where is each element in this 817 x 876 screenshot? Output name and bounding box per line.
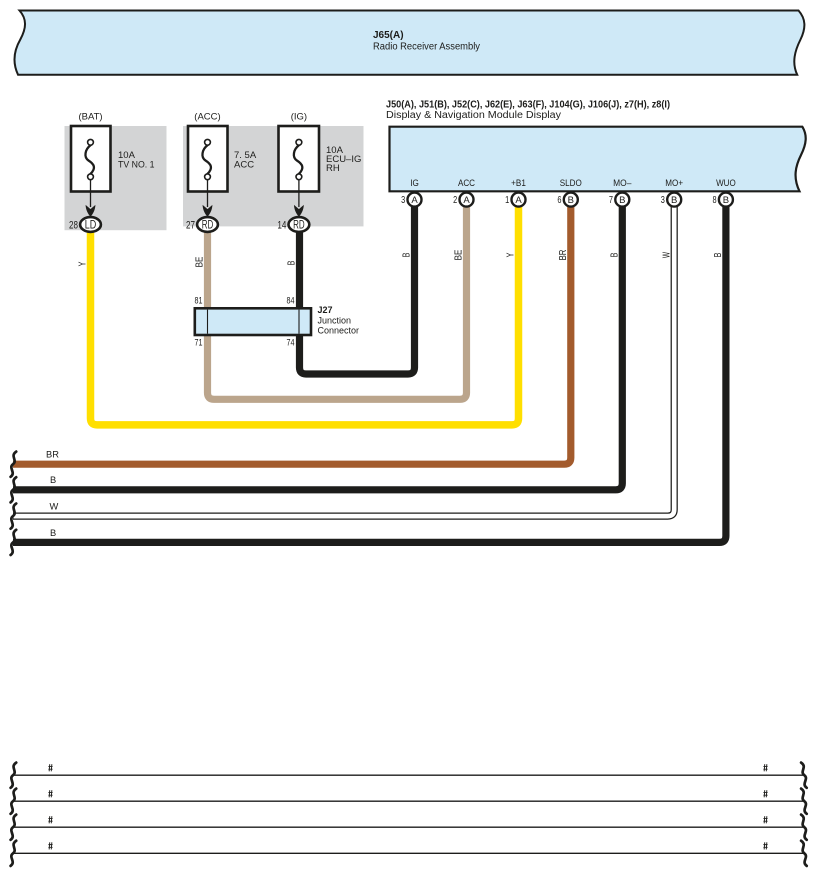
svg-text:MO+: MO+ bbox=[665, 178, 683, 188]
svg-text:3: 3 bbox=[661, 195, 665, 206]
svg-text:BE: BE bbox=[194, 257, 206, 268]
svg-text:BE: BE bbox=[453, 250, 465, 261]
svg-text:B: B bbox=[619, 195, 625, 206]
svg-text:Display & Navigation Module Di: Display & Navigation Module Display bbox=[386, 110, 561, 121]
svg-text:A: A bbox=[463, 195, 470, 206]
svg-text:SLDO: SLDO bbox=[560, 178, 582, 188]
svg-text:71: 71 bbox=[195, 337, 203, 348]
svg-text:J65(A): J65(A) bbox=[373, 30, 404, 41]
svg-text:RD: RD bbox=[202, 219, 214, 231]
svg-text:Y: Y bbox=[77, 262, 89, 267]
svg-text:BR: BR bbox=[46, 450, 59, 460]
svg-text:B: B bbox=[568, 195, 574, 206]
svg-text:W: W bbox=[660, 252, 672, 258]
svg-text:LD: LD bbox=[85, 219, 97, 231]
svg-text:Y: Y bbox=[505, 253, 517, 258]
svg-text:A: A bbox=[411, 195, 418, 206]
svg-text:(IG): (IG) bbox=[291, 112, 307, 123]
svg-text:84: 84 bbox=[287, 296, 295, 307]
svg-text:(ACC): (ACC) bbox=[194, 112, 220, 123]
svg-text:81: 81 bbox=[195, 296, 203, 307]
svg-text:ACC: ACC bbox=[234, 159, 254, 170]
svg-text:74: 74 bbox=[287, 337, 295, 348]
svg-text:Junction: Junction bbox=[318, 315, 352, 325]
svg-text:27: 27 bbox=[186, 220, 195, 232]
svg-text:ACC: ACC bbox=[458, 178, 476, 188]
svg-text:2: 2 bbox=[453, 195, 457, 206]
svg-text:B: B bbox=[50, 528, 56, 538]
svg-text:(BAT): (BAT) bbox=[78, 112, 102, 123]
svg-text:WUO: WUO bbox=[716, 178, 736, 188]
svg-text:B: B bbox=[401, 253, 413, 258]
svg-text:A: A bbox=[515, 195, 522, 206]
svg-text:MO–: MO– bbox=[613, 178, 631, 188]
svg-text:6: 6 bbox=[557, 195, 561, 206]
svg-text:TV NO. 1: TV NO. 1 bbox=[118, 159, 155, 170]
svg-text:7: 7 bbox=[609, 195, 613, 206]
svg-text:B: B bbox=[608, 253, 620, 258]
svg-text:B: B bbox=[723, 195, 729, 206]
svg-text:RD: RD bbox=[293, 219, 305, 231]
svg-text:3: 3 bbox=[401, 195, 405, 206]
svg-text:8: 8 bbox=[713, 195, 717, 206]
svg-text:28: 28 bbox=[69, 220, 78, 232]
svg-text:W: W bbox=[50, 502, 59, 512]
svg-text:J27: J27 bbox=[318, 305, 333, 315]
svg-text:BR: BR bbox=[557, 249, 569, 260]
svg-text:B: B bbox=[671, 195, 677, 206]
svg-text:1: 1 bbox=[505, 195, 509, 206]
svg-text:B: B bbox=[712, 253, 724, 258]
svg-text:Radio Receiver Assembly: Radio Receiver Assembly bbox=[373, 42, 480, 53]
svg-text:IG: IG bbox=[410, 178, 419, 188]
svg-text:RH: RH bbox=[326, 163, 340, 174]
svg-text:+B1: +B1 bbox=[511, 178, 526, 188]
svg-text:B: B bbox=[286, 261, 298, 266]
svg-text:Connector: Connector bbox=[318, 325, 360, 335]
svg-text:14: 14 bbox=[277, 220, 286, 232]
svg-text:B: B bbox=[50, 475, 56, 485]
